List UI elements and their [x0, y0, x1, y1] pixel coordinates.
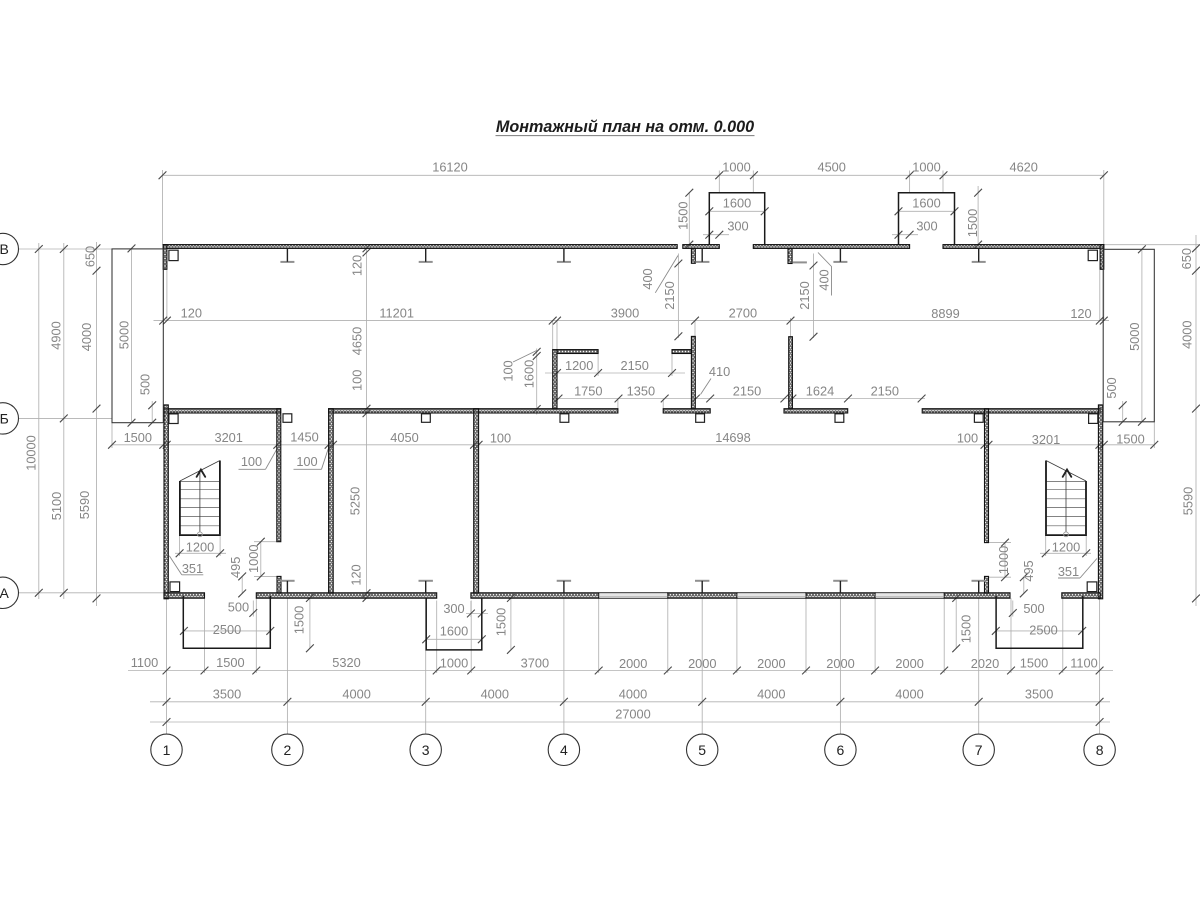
svg-text:4000: 4000 [342, 686, 370, 701]
svg-text:5250: 5250 [348, 487, 363, 515]
svg-text:27000: 27000 [615, 707, 651, 722]
svg-text:1000: 1000 [722, 159, 750, 174]
svg-text:1500: 1500 [494, 608, 509, 636]
svg-text:4000: 4000 [757, 686, 785, 701]
svg-text:300: 300 [727, 219, 748, 234]
svg-text:5590: 5590 [77, 491, 92, 519]
svg-text:410: 410 [709, 364, 730, 379]
svg-text:120: 120 [181, 306, 202, 321]
svg-text:495: 495 [1021, 560, 1036, 581]
svg-text:400: 400 [817, 269, 832, 290]
svg-text:4000: 4000 [481, 686, 509, 701]
svg-text:1500: 1500 [216, 655, 244, 670]
svg-text:2000: 2000 [895, 656, 923, 671]
svg-text:5000: 5000 [117, 321, 132, 349]
svg-text:2: 2 [284, 742, 292, 758]
svg-text:11201: 11201 [379, 305, 414, 320]
svg-text:4000: 4000 [79, 323, 94, 351]
svg-text:5000: 5000 [1127, 322, 1142, 350]
svg-text:1200: 1200 [565, 358, 593, 373]
svg-text:1600: 1600 [723, 196, 751, 211]
svg-text:8: 8 [1096, 742, 1104, 758]
svg-text:120: 120 [349, 255, 364, 276]
svg-text:4900: 4900 [49, 321, 64, 349]
svg-text:7: 7 [975, 742, 983, 758]
svg-text:2700: 2700 [729, 305, 757, 320]
svg-text:2150: 2150 [662, 281, 677, 309]
svg-text:1500: 1500 [959, 615, 974, 643]
svg-text:1: 1 [163, 742, 171, 758]
svg-text:1500: 1500 [124, 430, 152, 445]
svg-text:100: 100 [957, 431, 978, 446]
svg-text:8899: 8899 [931, 306, 959, 321]
svg-text:1100: 1100 [131, 655, 159, 670]
svg-text:2150: 2150 [733, 384, 761, 399]
svg-text:495: 495 [228, 557, 243, 578]
svg-text:16120: 16120 [432, 159, 468, 174]
svg-text:1600: 1600 [522, 360, 537, 388]
svg-text:300: 300 [916, 219, 937, 234]
svg-text:2000: 2000 [619, 656, 647, 671]
svg-text:6: 6 [837, 742, 845, 758]
svg-text:3201: 3201 [214, 430, 242, 445]
svg-text:100: 100 [349, 370, 364, 391]
svg-text:1500: 1500 [1020, 655, 1048, 670]
svg-text:3: 3 [422, 742, 430, 758]
svg-text:1000: 1000 [912, 159, 940, 174]
svg-text:500: 500 [228, 600, 249, 615]
svg-text:500: 500 [1104, 377, 1119, 398]
svg-text:1350: 1350 [627, 384, 655, 399]
svg-text:4500: 4500 [817, 159, 845, 174]
svg-text:Б: Б [0, 410, 9, 426]
svg-text:650: 650 [1179, 248, 1194, 269]
svg-text:1000: 1000 [246, 545, 261, 573]
svg-text:120: 120 [349, 564, 364, 585]
svg-text:2500: 2500 [213, 622, 241, 637]
svg-text:5100: 5100 [49, 492, 64, 520]
svg-text:2020: 2020 [971, 656, 999, 671]
svg-text:4650: 4650 [349, 327, 364, 355]
svg-text:В: В [0, 241, 9, 257]
svg-text:14698: 14698 [715, 430, 751, 445]
svg-text:4: 4 [560, 742, 568, 758]
svg-text:4050: 4050 [390, 430, 418, 445]
svg-text:300: 300 [443, 601, 464, 616]
svg-text:2000: 2000 [688, 656, 716, 671]
svg-text:4000: 4000 [619, 686, 647, 701]
svg-text:3900: 3900 [611, 306, 639, 321]
svg-text:5320: 5320 [332, 655, 360, 670]
svg-text:1600: 1600 [912, 196, 940, 211]
svg-text:1750: 1750 [574, 384, 602, 399]
svg-text:400: 400 [640, 268, 655, 289]
svg-text:Монтажный план на отм. 0.000: Монтажный план на отм. 0.000 [496, 116, 755, 135]
svg-text:3700: 3700 [521, 655, 549, 670]
svg-text:100: 100 [241, 454, 262, 469]
svg-text:10000: 10000 [24, 435, 39, 471]
svg-text:1624: 1624 [806, 384, 834, 399]
svg-text:5590: 5590 [1181, 487, 1196, 515]
svg-text:100: 100 [501, 360, 516, 381]
svg-text:2000: 2000 [757, 656, 785, 671]
svg-text:650: 650 [83, 246, 98, 267]
svg-text:100: 100 [296, 454, 317, 469]
svg-text:1200: 1200 [186, 540, 214, 555]
svg-text:1500: 1500 [965, 209, 980, 237]
svg-text:1500: 1500 [676, 201, 691, 229]
svg-text:3500: 3500 [1025, 686, 1053, 701]
svg-text:351: 351 [1058, 564, 1079, 579]
svg-text:4620: 4620 [1009, 159, 1037, 174]
svg-text:2150: 2150 [871, 384, 899, 399]
svg-text:1200: 1200 [1052, 540, 1080, 555]
svg-text:3201: 3201 [1032, 432, 1060, 447]
svg-text:1500: 1500 [1116, 432, 1144, 447]
svg-text:5: 5 [698, 742, 706, 758]
svg-text:2150: 2150 [620, 358, 648, 373]
svg-text:1600: 1600 [440, 623, 468, 638]
svg-text:500: 500 [1023, 601, 1044, 616]
svg-text:500: 500 [138, 374, 153, 395]
svg-text:3500: 3500 [213, 686, 241, 701]
svg-text:120: 120 [1070, 306, 1091, 321]
svg-text:1500: 1500 [292, 606, 307, 634]
svg-text:2150: 2150 [797, 281, 812, 309]
svg-text:1000: 1000 [440, 655, 468, 670]
svg-text:351: 351 [182, 561, 203, 576]
svg-text:2500: 2500 [1029, 623, 1057, 638]
svg-text:1100: 1100 [1070, 655, 1098, 670]
svg-text:4000: 4000 [1180, 320, 1195, 348]
svg-text:1450: 1450 [290, 430, 318, 445]
svg-text:100: 100 [490, 431, 511, 446]
svg-text:4000: 4000 [895, 686, 923, 701]
svg-text:А: А [0, 585, 10, 601]
svg-text:1000: 1000 [996, 546, 1011, 574]
svg-text:2000: 2000 [826, 656, 854, 671]
